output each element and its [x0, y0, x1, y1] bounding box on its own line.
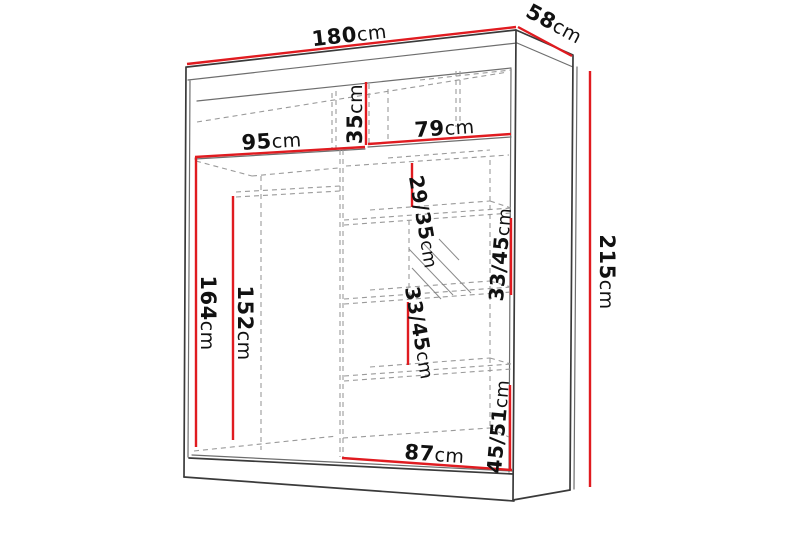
shelf-depth-diagonal	[490, 358, 511, 364]
floor-back-edge-right	[343, 428, 490, 438]
right-section-width-label: 79cm	[414, 114, 476, 142]
top-shelf-height-label: 35cm	[343, 84, 367, 144]
shelf-back-edge	[370, 281, 490, 290]
left-inner-edge	[188, 81, 190, 457]
hanging-rod	[236, 186, 340, 192]
mirror-hatch-line	[439, 239, 459, 260]
left-outer-edge	[184, 67, 186, 477]
depth-label: 58cm	[522, 0, 586, 49]
bottom-front-edge	[184, 477, 514, 501]
left-section-width-label: 95cm	[241, 127, 303, 155]
floor-back-edge-left	[194, 436, 337, 451]
side-back-edge	[570, 56, 573, 490]
rod-height-label: 152cm	[233, 285, 257, 360]
hanging-rod	[236, 191, 340, 197]
shelf-gap-top-label: 29/35cm	[404, 173, 444, 270]
front-right-edge	[513, 31, 516, 500]
left-depth-diagonal	[196, 161, 252, 176]
shelf-back-edge-left	[252, 168, 338, 176]
shelf-back-edge	[346, 155, 509, 166]
diagram-canvas: 180cm 58cm 215cm 95cm 35cm 79cm 164cm 15…	[0, 0, 800, 533]
side-bottom-edge	[513, 490, 570, 500]
shelf-gap-lower-label: 33/45cm	[400, 284, 440, 381]
side-back-inner-edge	[574, 67, 577, 489]
wardrobe-outline	[184, 30, 577, 501]
top-panel-underside-right	[517, 43, 573, 67]
shelf-depth-diagonal	[490, 201, 511, 208]
height-label: 215cm	[595, 234, 619, 309]
hanging-height-label: 164cm	[196, 275, 220, 350]
bottom-section-width-label: 87cm	[404, 440, 466, 468]
dimension-labels: 180cm 58cm 215cm 95cm 35cm 79cm 164cm 15…	[196, 0, 619, 474]
wardrobe-dimension-diagram: 180cm 58cm 215cm 95cm 35cm 79cm 164cm 15…	[0, 0, 800, 533]
